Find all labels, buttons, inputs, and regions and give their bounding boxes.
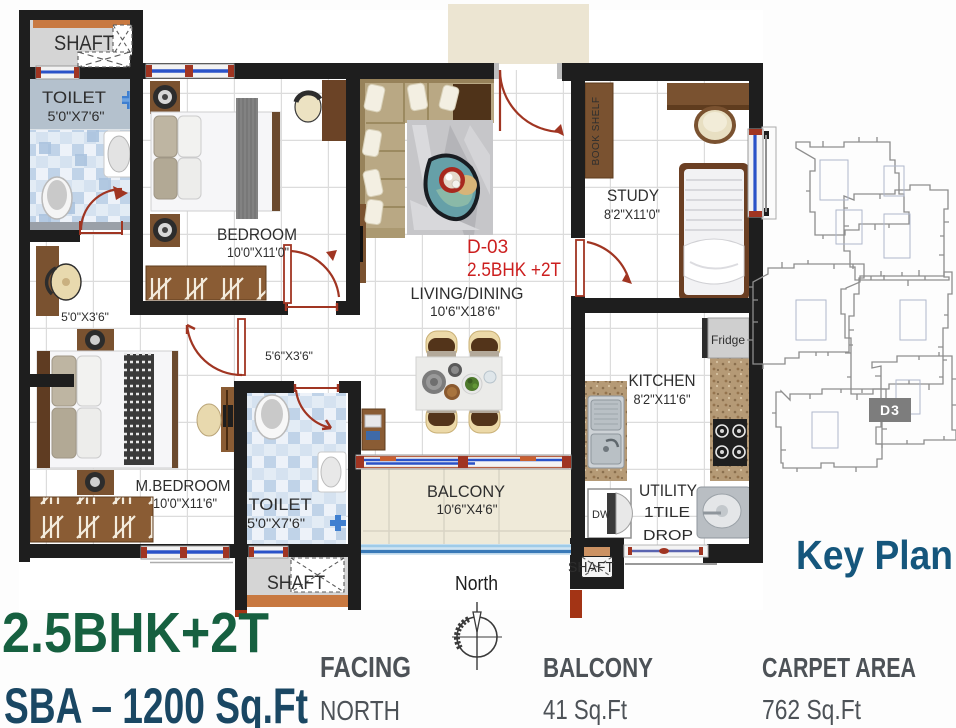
svg-text:STUDY: STUDY — [607, 186, 659, 205]
svg-text:Key Plan: Key Plan — [796, 532, 953, 578]
svg-text:10'6"X4'6": 10'6"X4'6" — [437, 501, 498, 517]
svg-text:Fridge: Fridge — [711, 333, 745, 347]
svg-text:BEDROOM: BEDROOM — [217, 225, 297, 244]
svg-text:D3: D3 — [880, 402, 900, 418]
svg-text:TOILET: TOILET — [42, 88, 106, 107]
svg-text:DW: DW — [592, 509, 611, 521]
svg-text:SBA – 1200 Sq.Ft: SBA – 1200 Sq.Ft — [4, 678, 308, 728]
svg-text:10'0"X11'6": 10'0"X11'6" — [153, 495, 217, 511]
svg-text:CARPET AREA: CARPET AREA — [762, 652, 916, 683]
svg-text:41 Sq.Ft: 41 Sq.Ft — [543, 694, 627, 725]
svg-text:5'0"X7'6": 5'0"X7'6" — [48, 108, 105, 124]
svg-text:KITCHEN: KITCHEN — [629, 371, 696, 390]
svg-text:M.BEDROOM: M.BEDROOM — [136, 478, 231, 495]
svg-text:BALCONY: BALCONY — [543, 652, 653, 683]
svg-text:BOOK SHELF: BOOK SHELF — [591, 97, 602, 166]
svg-text:BALCONY: BALCONY — [427, 482, 505, 501]
svg-text:SHAFT: SHAFT — [267, 573, 325, 594]
svg-text:8'2"X11'6": 8'2"X11'6" — [634, 391, 691, 407]
svg-text:SHAFT: SHAFT — [54, 32, 114, 55]
svg-text:8'2"X11'0": 8'2"X11'0" — [604, 206, 660, 222]
svg-text:UTILITY: UTILITY — [639, 481, 697, 500]
svg-text:North: North — [455, 573, 498, 595]
svg-text:5'6"X3'6": 5'6"X3'6" — [265, 349, 313, 363]
svg-text:SHAFT: SHAFT — [568, 559, 614, 576]
svg-text:NORTH: NORTH — [320, 695, 400, 726]
svg-text:762 Sq.Ft: 762 Sq.Ft — [762, 694, 861, 725]
svg-text:FACING: FACING — [320, 652, 411, 684]
svg-text:10'0"X11'0": 10'0"X11'0" — [227, 244, 289, 260]
svg-text:10'6"X18'6": 10'6"X18'6" — [430, 303, 500, 319]
svg-text:2.5BHK+2T: 2.5BHK+2T — [2, 601, 269, 665]
svg-text:1TILE: 1TILE — [644, 504, 690, 521]
svg-text:5'0"X3'6": 5'0"X3'6" — [61, 310, 109, 324]
svg-text:TOILET: TOILET — [249, 495, 312, 514]
svg-text:DROP: DROP — [643, 527, 693, 544]
svg-text:LIVING/DINING: LIVING/DINING — [411, 284, 524, 303]
svg-text:2.5BHK +2T: 2.5BHK +2T — [467, 260, 561, 281]
svg-text:D-03: D-03 — [467, 237, 508, 258]
svg-text:5'0"X7'6": 5'0"X7'6" — [247, 515, 305, 531]
